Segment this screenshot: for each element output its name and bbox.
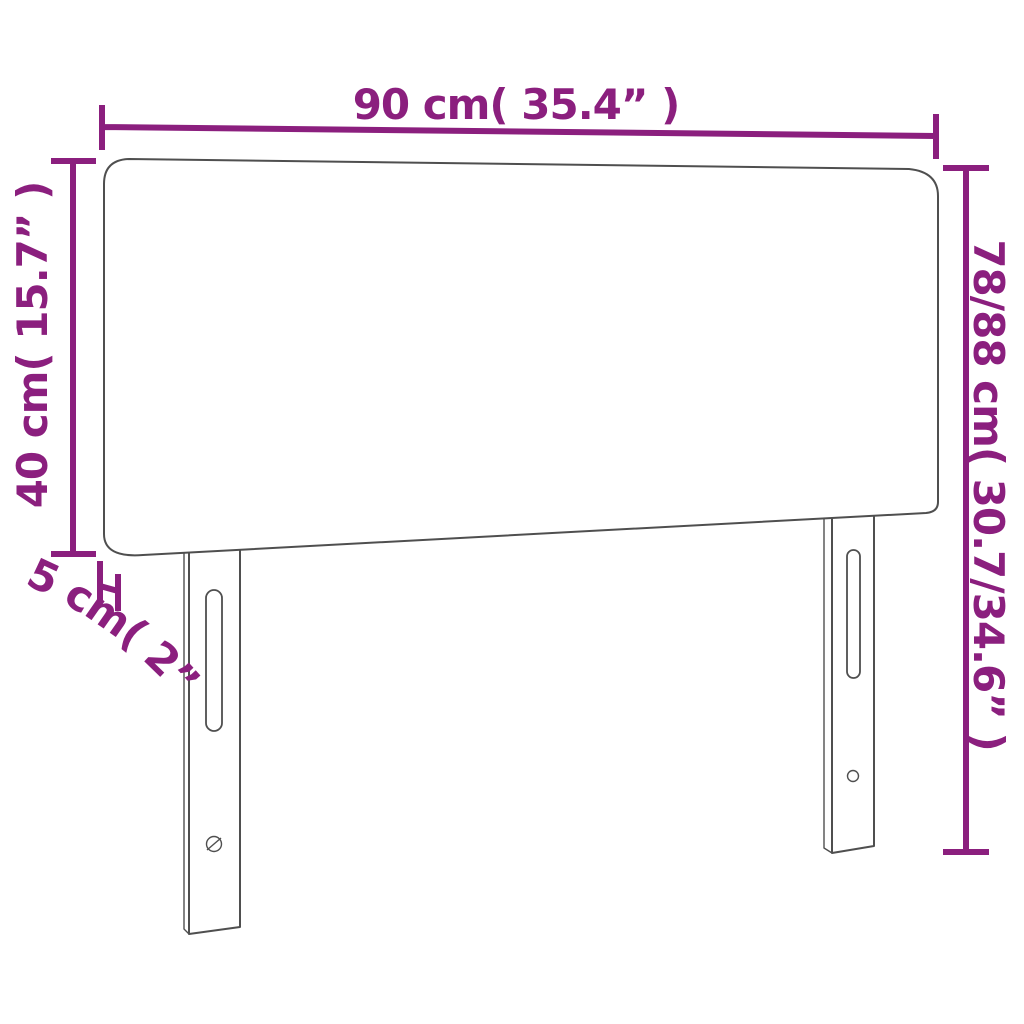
total-height-dimension-label: 78/88 cm( 30.7/34.6” ) [964, 239, 1013, 750]
panel-height-dimension-label: 40 cm( 15.7” ) [8, 182, 57, 509]
headboard-panel [104, 159, 938, 555]
left-leg-mounting-slot [206, 590, 222, 731]
diagram-canvas: 90 cm( 35.4” ) 40 cm( 15.7” ) 5 cm( 2” )… [0, 0, 1024, 1024]
headboard-dimension-diagram: 90 cm( 35.4” ) 40 cm( 15.7” ) 5 cm( 2” )… [0, 0, 1024, 1024]
width-dimension-label: 90 cm( 35.4” ) [353, 80, 680, 129]
right-leg-mounting-slot [847, 550, 860, 678]
